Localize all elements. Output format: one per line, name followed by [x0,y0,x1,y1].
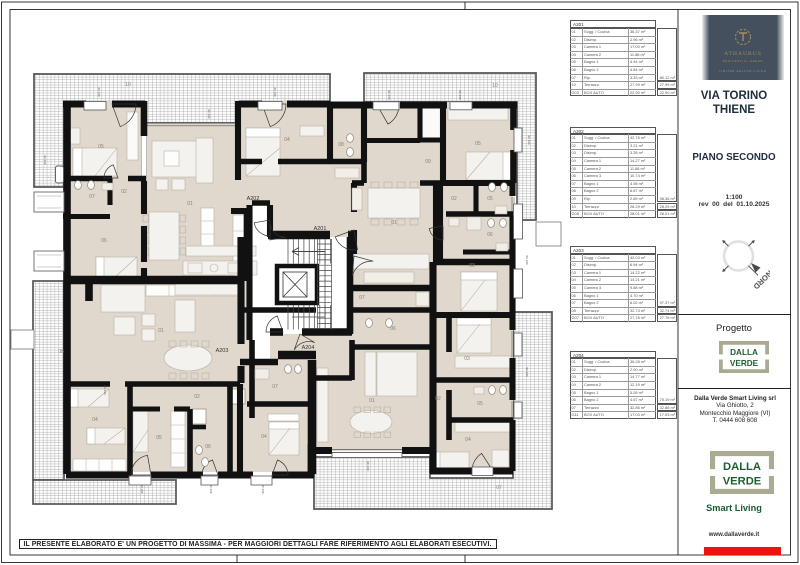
svg-text:LIMITED DELUXE LIVING: LIMITED DELUXE LIVING [719,69,766,73]
svg-text:05: 05 [156,435,162,441]
svg-text:A204: A204 [302,345,315,351]
svg-text:04: 04 [284,137,290,143]
svg-text:08: 08 [58,349,64,355]
svg-text:01: 01 [369,398,375,404]
svg-text:07: 07 [496,485,502,491]
svg-text:A203: A203 [216,348,229,354]
svg-text:10: 10 [492,83,498,89]
svg-text:90 240: 90 240 [140,484,144,494]
svg-text:09: 09 [425,159,431,165]
svg-text:05: 05 [475,141,481,147]
svg-text:03: 03 [464,356,470,362]
svg-text:90 240: 90 240 [97,87,101,97]
svg-text:06: 06 [205,444,211,450]
svg-text:VERDE: VERDE [730,359,759,368]
svg-text:90 240: 90 240 [209,484,213,494]
svg-text:07: 07 [89,194,95,200]
svg-text:VERDE: VERDE [723,476,762,488]
svg-text:90 240: 90 240 [525,367,529,377]
svg-text:02: 02 [194,394,200,400]
svg-text:90 240: 90 240 [207,109,211,119]
svg-text:90 240: 90 240 [43,155,47,165]
svg-text:02: 02 [451,196,457,202]
svg-text:06: 06 [487,232,493,238]
svg-text:03: 03 [469,263,475,269]
svg-text:90 240: 90 240 [261,484,265,494]
svg-text:A202: A202 [247,196,260,202]
svg-text:01: 01 [187,201,193,207]
svg-text:02: 02 [435,396,441,402]
svg-text:90 240: 90 240 [103,385,107,395]
svg-text:90 240: 90 240 [366,461,370,471]
svg-text:A201: A201 [314,226,327,232]
svg-text:05: 05 [487,196,493,202]
svg-text:05: 05 [98,144,104,150]
svg-text:90 240: 90 240 [387,90,391,100]
svg-text:01: 01 [391,220,397,226]
svg-text:07: 07 [272,384,278,390]
svg-text:04: 04 [261,434,267,440]
svg-text:90 240: 90 240 [527,135,531,145]
svg-text:10: 10 [125,82,131,88]
svg-text:90 240: 90 240 [525,255,529,265]
svg-text:01: 01 [158,328,164,334]
svg-text:05: 05 [477,401,483,407]
svg-text:07: 07 [359,295,365,301]
svg-text:02: 02 [121,189,127,195]
svg-text:90 240: 90 240 [458,90,462,100]
svg-text:DALLA: DALLA [723,461,761,473]
svg-text:RESIDENZIAL GREEN: RESIDENZIAL GREEN [723,59,763,63]
svg-text:90 240: 90 240 [273,87,277,97]
svg-text:ATHAURUS: ATHAURUS [724,51,762,57]
svg-text:04: 04 [92,417,98,423]
svg-text:04: 04 [465,437,471,443]
svg-text:06: 06 [101,238,107,244]
svg-text:08: 08 [338,142,344,148]
svg-text:DALLA: DALLA [730,348,758,357]
